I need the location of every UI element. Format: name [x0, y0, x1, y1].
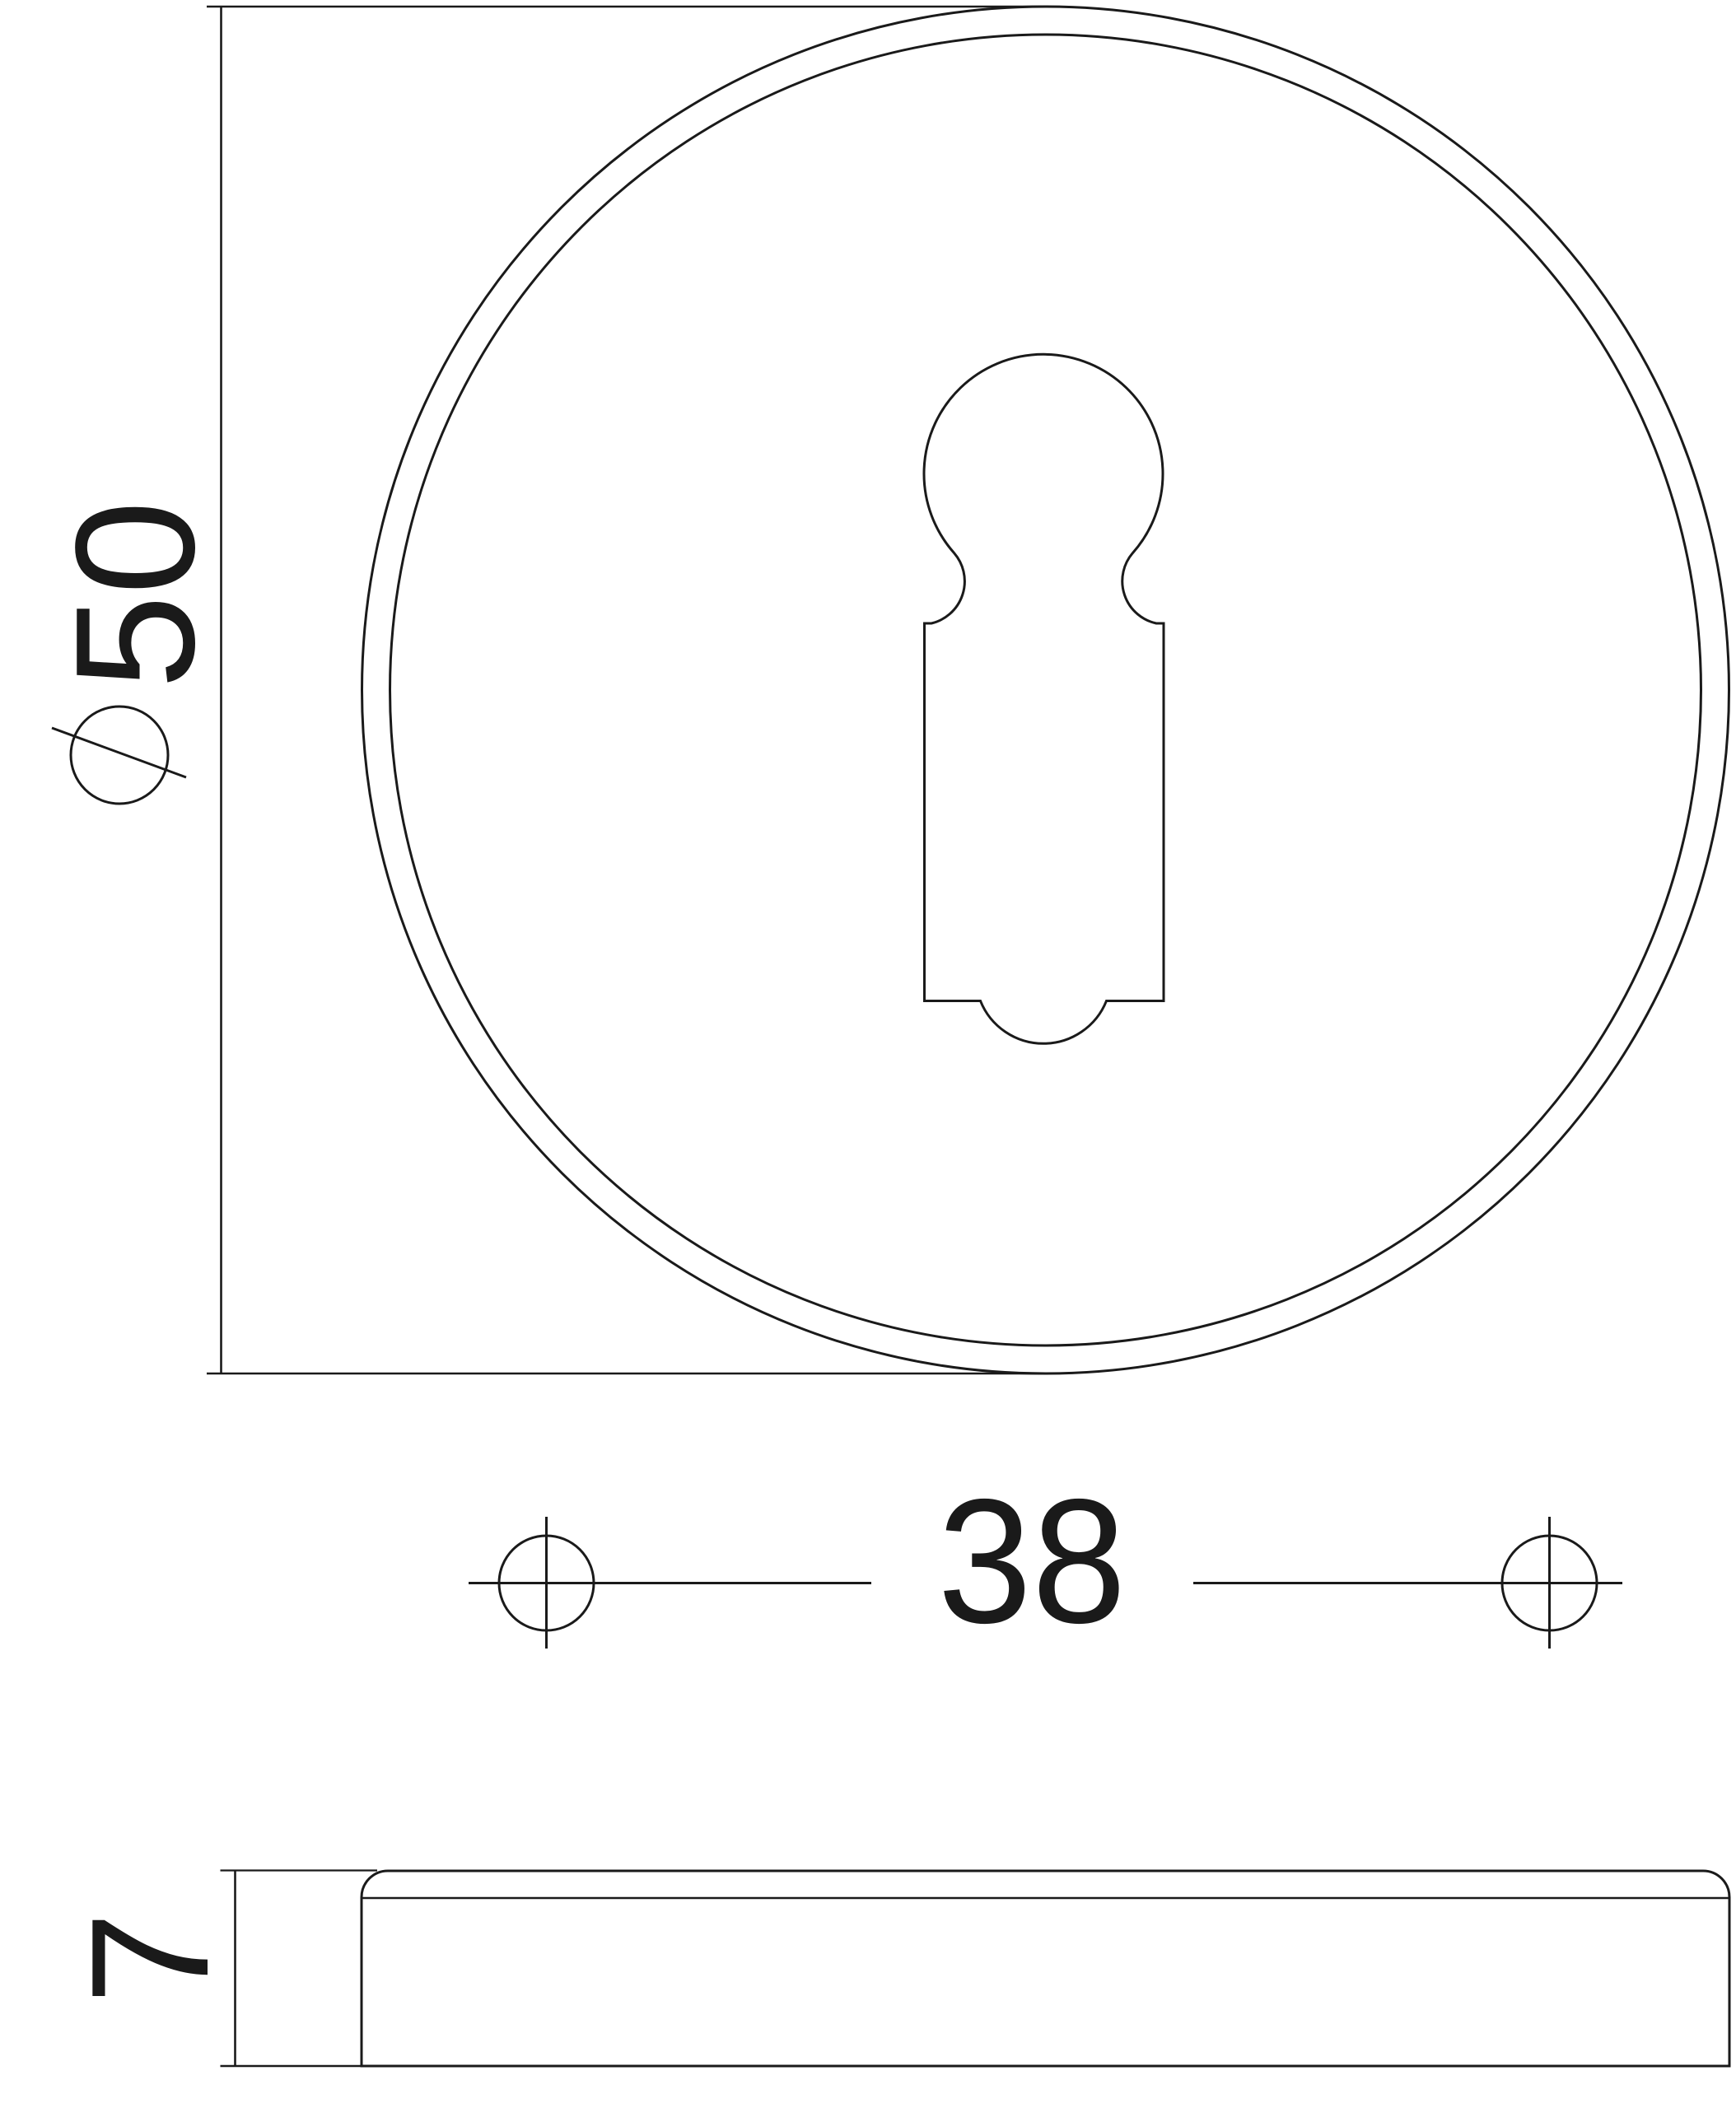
svg-text:38: 38	[938, 1462, 1127, 1660]
svg-text:50: 50	[40, 501, 230, 689]
svg-text:7: 7	[57, 1912, 244, 2005]
